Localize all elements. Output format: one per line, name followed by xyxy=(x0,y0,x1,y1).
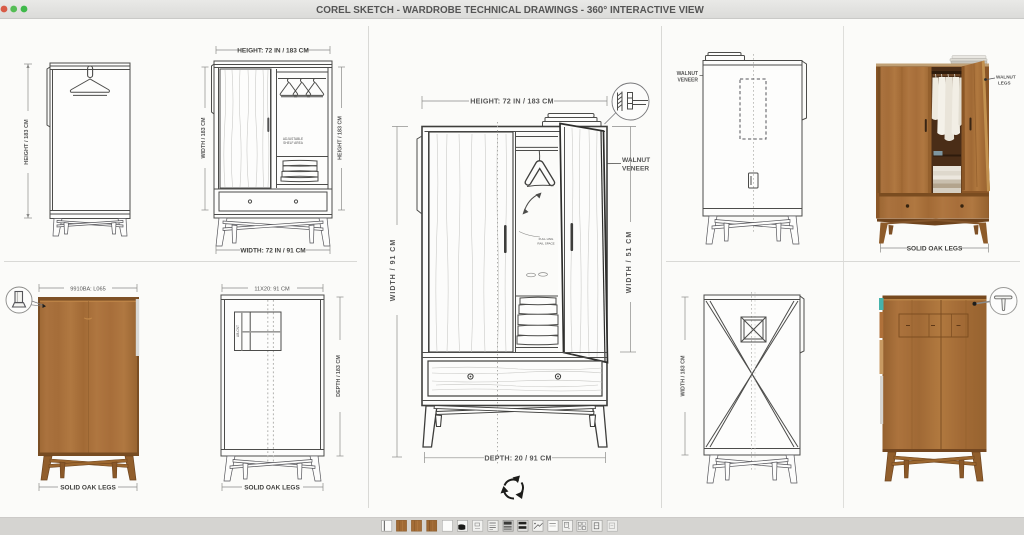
svg-text:SOLID OAK LEGS: SOLID OAK LEGS xyxy=(244,484,300,491)
svg-text:SOLID OAK LEGS: SOLID OAK LEGS xyxy=(60,484,116,491)
svg-text:SOLID OAK LEGS: SOLID OAK LEGS xyxy=(907,245,963,252)
svg-text:WALNUT: WALNUT xyxy=(677,71,698,77)
svg-text:FULL HNG: FULL HNG xyxy=(539,237,554,241)
svg-text:AB-CNT: AB-CNT xyxy=(236,325,240,337)
svg-text:HEIGHT: 72 IN / 183 CM: HEIGHT: 72 IN / 183 CM xyxy=(237,47,309,54)
svg-text:DEPTH / 183 CM: DEPTH / 183 CM xyxy=(336,355,342,397)
svg-text:WIDTH / 183 CM: WIDTH / 183 CM xyxy=(681,355,687,397)
svg-text:HEIGHT: 72 IN / 183 CM: HEIGHT: 72 IN / 183 CM xyxy=(470,97,553,106)
svg-text:11X20: 91 CM: 11X20: 91 CM xyxy=(254,286,290,292)
svg-text:RAIL SPACE: RAIL SPACE xyxy=(537,242,554,246)
svg-text:WALNUT: WALNUT xyxy=(996,75,1016,80)
svg-text:SHELF AREA: SHELF AREA xyxy=(283,141,304,145)
svg-text:HEIGHT / 183 CM: HEIGHT / 183 CM xyxy=(338,116,344,160)
svg-text:COREL SKETCH - WARDROBE TECHNI: COREL SKETCH - WARDROBE TECHNICAL DRAWIN… xyxy=(316,5,704,16)
svg-text:VENEER: VENEER xyxy=(677,78,698,84)
svg-text:DEPTH: 20 / 91 CM: DEPTH: 20 / 91 CM xyxy=(484,454,551,463)
svg-text:LEGS: LEGS xyxy=(998,81,1011,86)
svg-text:WIDTH / 51 CM: WIDTH / 51 CM xyxy=(626,231,633,293)
svg-text:WALNUT: WALNUT xyxy=(622,157,650,164)
svg-text:VENEER: VENEER xyxy=(622,166,649,173)
svg-text:WIDTH / 183 CM: WIDTH / 183 CM xyxy=(201,117,207,159)
svg-text:WIDTH: 72 IN / 91 CM: WIDTH: 72 IN / 91 CM xyxy=(240,247,305,254)
svg-text:9910BA: L065: 9910BA: L065 xyxy=(70,286,105,292)
svg-text:HEIGHT / 183 CM: HEIGHT / 183 CM xyxy=(24,119,30,165)
svg-text:WIDTH / 91 CM: WIDTH / 91 CM xyxy=(390,239,397,301)
